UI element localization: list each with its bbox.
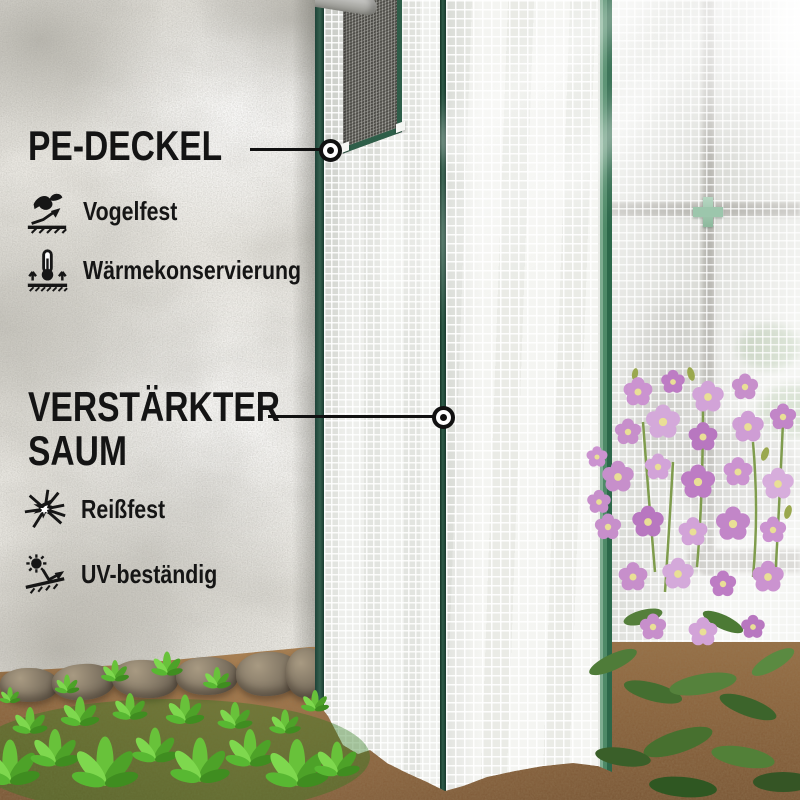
callout-dot-pe-deckel — [319, 139, 342, 162]
callout-dot-saum — [432, 406, 455, 429]
callout-line-pe-deckel — [250, 148, 322, 151]
feature-row-waermekonservierung: Wärmekonservierung — [24, 247, 349, 293]
left-green-trim — [315, 0, 324, 710]
page-title-line: SAUM — [28, 429, 280, 473]
flower-bed — [583, 362, 800, 800]
feature-label: Vogelfest — [83, 196, 177, 227]
vent-green-frame-right — [397, 0, 402, 134]
frame-cross-connector — [693, 197, 723, 227]
feature-row-vogelfest: Vogelfest — [24, 188, 198, 234]
page-title: PE-DECKEL — [28, 124, 222, 168]
feature-label: Wärmekonservierung — [83, 255, 301, 286]
callout-title-pe-deckel: PE-DECKEL — [28, 124, 271, 168]
front-cover-panel — [446, 0, 598, 792]
page-title-line: VERSTÄRKTER — [28, 385, 280, 429]
tear-resistant-icon — [22, 486, 68, 532]
uv-resistant-icon — [22, 551, 68, 597]
callout-title-verstaerkter-saum: VERSTÄRKTER SAUM — [28, 385, 343, 472]
feature-label: Reißfest — [81, 494, 165, 525]
seedling-bed — [0, 632, 380, 800]
feature-row-reissfest: Reißfest — [22, 486, 184, 532]
feature-label: UV-beständig — [81, 559, 217, 590]
feature-row-uv-bestaendig: UV-beständig — [22, 551, 247, 597]
product-feature-image: PE-DECKEL Vogelfest Wärmekonservierung V… — [0, 0, 800, 800]
heat-conservation-icon — [24, 247, 70, 293]
bird-proof-icon — [24, 188, 70, 234]
flower-blossoms — [587, 370, 797, 645]
greenhouse-wall-shadow — [292, 0, 318, 672]
callout-line-saum — [268, 415, 433, 418]
mesh-vent-window — [343, 0, 402, 153]
